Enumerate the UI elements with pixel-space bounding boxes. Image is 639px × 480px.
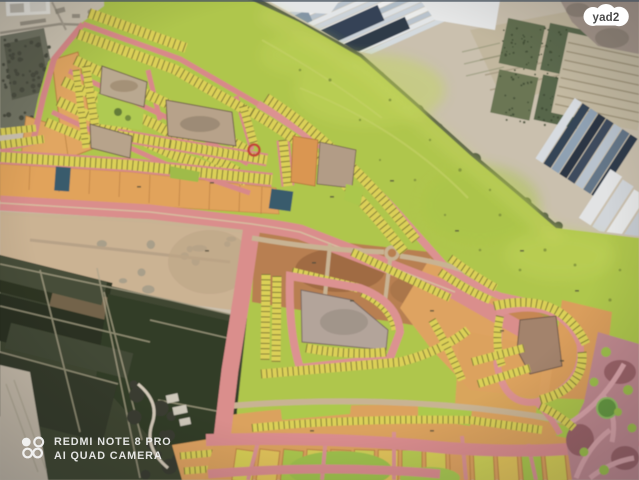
svg-text:AI QUAD CAMERA: AI QUAD CAMERA <box>54 450 163 462</box>
svg-text:REDMI NOTE 8 PRO: REDMI NOTE 8 PRO <box>54 436 172 448</box>
svg-text:yad2: yad2 <box>592 12 619 24</box>
